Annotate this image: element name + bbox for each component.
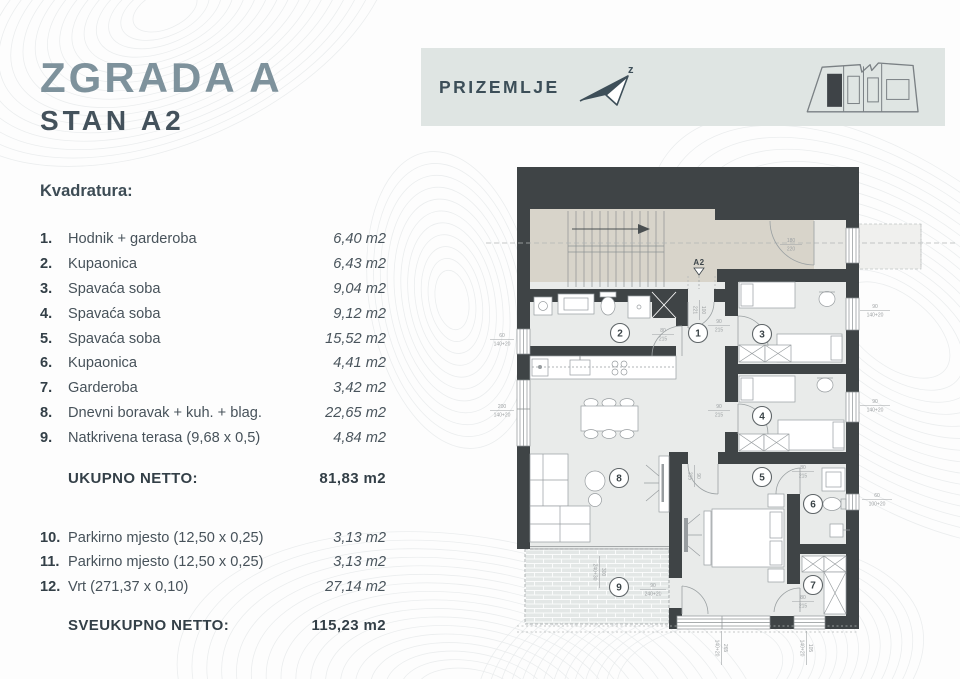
row-value: 22,65 m2 [294, 405, 386, 421]
svg-text:7: 7 [810, 581, 816, 592]
svg-text:100+20: 100+20 [869, 502, 886, 508]
page: { "left_panel": { "building_title": "ZGR… [0, 0, 960, 679]
dimension-label: 265140+20 [714, 631, 729, 665]
svg-text:140+20: 140+20 [494, 413, 511, 419]
svg-text:240+30: 240+30 [592, 564, 598, 581]
svg-text:215: 215 [799, 474, 808, 480]
room-marker: 9 [610, 578, 629, 597]
room-marker: 2 [611, 324, 630, 343]
subtotal-value: 81,83 m2 [294, 470, 386, 487]
area-row: 5.Spavaća soba15,52 m2 [40, 326, 386, 351]
svg-text:140+20: 140+20 [714, 640, 720, 657]
svg-text:180: 180 [787, 238, 796, 244]
kitchen-counter [530, 356, 676, 379]
floor-bar: PRIZEMLJE z [421, 48, 945, 126]
site-plan-icon [799, 57, 923, 117]
svg-text:60: 60 [874, 493, 880, 499]
pillow [770, 512, 782, 538]
svg-text:2: 2 [617, 329, 623, 340]
svg-text:265: 265 [722, 644, 728, 653]
vanity [558, 294, 594, 314]
row-value: 9,12 m2 [294, 306, 386, 322]
shower [822, 468, 845, 491]
area-row: 4.Spavaća soba9,12 m2 [40, 301, 386, 326]
row-number: 6. [40, 355, 68, 371]
svg-text:215: 215 [715, 413, 724, 419]
svg-text:4: 4 [759, 412, 765, 423]
row-value: 15,52 m2 [294, 331, 386, 347]
floor-plan: A2 8021590215902159021580215802151802201… [484, 158, 960, 679]
toilet-tank [600, 292, 616, 297]
dimension-label: 60140+20 [490, 333, 514, 348]
total-label: SVEUKUPNO NETTO: [40, 617, 294, 634]
dimension-label: 90140+20 [860, 304, 890, 319]
svg-text:215: 215 [687, 472, 693, 481]
svg-text:90: 90 [650, 583, 656, 589]
row-label: Kupaonica [68, 355, 294, 371]
area-row: 7.Garderoba3,42 m2 [40, 376, 386, 401]
svg-text:200: 200 [498, 404, 507, 410]
row-label: Natkrivena terasa (9,68 x 0,5) [68, 430, 294, 446]
pillow [741, 378, 753, 400]
svg-text:6: 6 [810, 500, 816, 511]
floor-label: PRIZEMLJE [421, 77, 560, 98]
ottoman [589, 494, 602, 507]
row-number: 5. [40, 331, 68, 347]
svg-text:215: 215 [799, 604, 808, 610]
svg-text:90: 90 [872, 399, 878, 405]
tv-panel [684, 518, 688, 552]
svg-text:9: 9 [616, 583, 622, 594]
svg-text:221: 221 [692, 306, 698, 315]
row-label: Spavaća soba [68, 331, 294, 347]
svg-text:140+20: 140+20 [799, 640, 805, 657]
entrance-label: A2 [693, 258, 704, 267]
small-sink [830, 524, 843, 537]
row-value: 4,84 m2 [294, 430, 386, 446]
row-label: Garderoba [68, 380, 294, 396]
svg-text:300: 300 [600, 568, 606, 577]
washing-machine [534, 297, 552, 315]
sink [817, 378, 833, 392]
pillow [770, 541, 782, 565]
row-label: Spavaća soba [68, 306, 294, 322]
toilet [823, 498, 841, 511]
room-marker: 3 [753, 325, 772, 344]
area-row: 2.Kupaonica6,43 m2 [40, 252, 386, 277]
row-value: 3,13 m2 [294, 554, 386, 570]
svg-text:90: 90 [716, 404, 722, 410]
extras-list: 10.Parkirno mjesto (12,50 x 0,25)3,13 m2… [40, 525, 386, 599]
area-row: 6.Kupaonica4,41 m2 [40, 351, 386, 376]
row-value: 9,04 m2 [294, 281, 386, 297]
area-row: 8.Dnevni boravak + kuh. + blag.22,65 m2 [40, 401, 386, 426]
row-label: Spavaća soba [68, 281, 294, 297]
info-panel: ZGRADA A STAN A2 Kvadratura: 1.Hodnik + … [40, 0, 386, 638]
compass-letter: z [628, 64, 634, 76]
row-number: 12. [40, 579, 68, 595]
row-number: 9. [40, 430, 68, 446]
row-label: Parkirno mjesto (12,50 x 0,25) [68, 554, 294, 570]
row-number: 11. [40, 554, 68, 570]
svg-text:105: 105 [807, 644, 813, 653]
row-value: 3,13 m2 [294, 530, 386, 546]
lounge-chair [585, 471, 605, 491]
svg-text:100: 100 [700, 306, 706, 315]
row-label: Dnevni boravak + kuh. + blag. [68, 405, 294, 421]
unit-title: STAN A2 [40, 106, 386, 136]
svg-text:240+20: 240+20 [645, 592, 662, 598]
svg-text:140+20: 140+20 [494, 342, 511, 348]
site-highlight-zgrada-a [827, 74, 842, 107]
room-marker: 6 [804, 495, 823, 514]
row-value: 6,43 m2 [294, 256, 386, 272]
room-marker: 4 [753, 407, 772, 426]
row-label: Parkirno mjesto (12,50 x 0,25) [68, 530, 294, 546]
area-row: 1.Hodnik + garderoba6,40 m2 [40, 227, 386, 252]
dimension-label: 105140+20 [799, 631, 814, 665]
toilet [601, 297, 615, 315]
north-arrow-icon: z [576, 63, 638, 111]
area-list: 1.Hodnik + garderoba6,40 m22.Kupaonica6,… [40, 227, 386, 450]
row-label: Hodnik + garderoba [68, 231, 294, 247]
svg-text:215: 215 [715, 328, 724, 334]
pillow [741, 284, 753, 306]
area-row: 3.Spavaća soba9,04 m2 [40, 277, 386, 302]
room-marker: 7 [804, 576, 823, 595]
area-row: 12.Vrt (271,37 x 0,10)27,14 m2 [40, 575, 386, 600]
row-number: 1. [40, 231, 68, 247]
svg-text:80: 80 [800, 595, 806, 601]
pillow [831, 336, 842, 360]
subtotal-row: UKUPNO NETTO: 81,83 m2 [40, 466, 386, 491]
svg-text:60: 60 [499, 333, 505, 339]
svg-text:80: 80 [800, 465, 806, 471]
row-number: 7. [40, 380, 68, 396]
section-label: Kvadratura: [40, 182, 386, 201]
dimension-label: 200140+20 [490, 404, 514, 419]
row-number: 4. [40, 306, 68, 322]
row-number: 8. [40, 405, 68, 421]
svg-text:8: 8 [616, 474, 622, 485]
building-title: ZGRADA A [40, 56, 386, 100]
area-row: 11.Parkirno mjesto (12,50 x 0,25)3,13 m2 [40, 550, 386, 575]
sink [819, 292, 835, 307]
svg-text:80: 80 [660, 328, 666, 334]
svg-text:1: 1 [695, 329, 701, 340]
svg-text:3: 3 [759, 330, 765, 341]
svg-text:140+20: 140+20 [867, 408, 884, 414]
area-row: 10.Parkirno mjesto (12,50 x 0,25)3,13 m2 [40, 525, 386, 550]
row-value: 4,41 m2 [294, 355, 386, 371]
row-label: Kupaonica [68, 256, 294, 272]
row-label: Vrt (271,37 x 0,10) [68, 579, 294, 595]
row-value: 27,14 m2 [294, 579, 386, 595]
total-row: SVEUKUPNO NETTO: 115,23 m2 [40, 613, 386, 638]
row-number: 10. [40, 530, 68, 546]
dimension-label: 60100+20 [862, 493, 892, 508]
room-marker: 1 [689, 324, 708, 343]
dimension-label: 90140+20 [860, 399, 890, 414]
room-marker: 5 [753, 468, 772, 487]
subtotal-label: UKUPNO NETTO: [40, 470, 294, 487]
svg-text:140+20: 140+20 [867, 313, 884, 319]
row-value: 3,42 m2 [294, 380, 386, 396]
shower [628, 296, 650, 318]
svg-text:90: 90 [716, 319, 722, 325]
row-value: 6,40 m2 [294, 231, 386, 247]
nightstand [768, 494, 784, 507]
area-row: 9.Natkrivena terasa (9,68 x 0,5)4,84 m2 [40, 425, 386, 450]
nightstand [768, 569, 784, 582]
svg-text:90: 90 [872, 304, 878, 310]
svg-text:215: 215 [659, 337, 668, 343]
room-marker: 8 [610, 469, 629, 488]
svg-text:220: 220 [787, 247, 796, 253]
row-number: 3. [40, 281, 68, 297]
svg-text:5: 5 [759, 473, 765, 484]
bench [704, 511, 711, 565]
terrace-floor [525, 549, 669, 624]
row-number: 2. [40, 256, 68, 272]
pillow [833, 422, 844, 448]
dining-table [581, 406, 638, 431]
total-value: 115,23 m2 [294, 617, 386, 634]
svg-text:90: 90 [695, 473, 701, 479]
